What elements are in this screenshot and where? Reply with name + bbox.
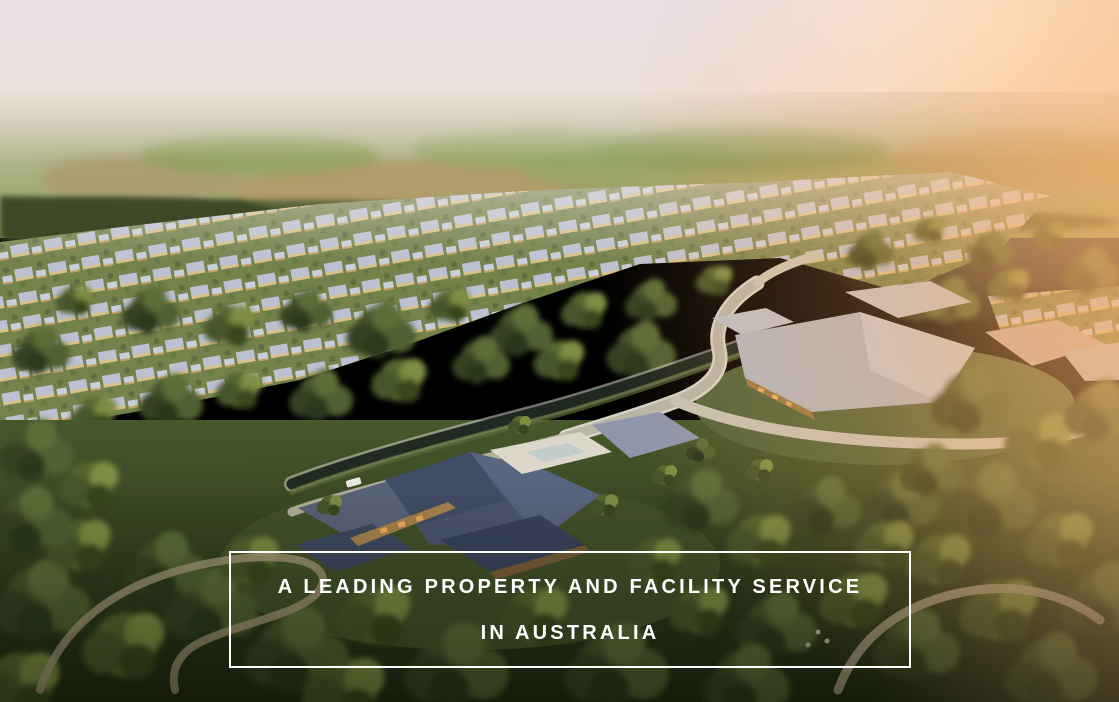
headline-box: A LEADING PROPERTY AND FACILITY SERVICE … — [229, 551, 911, 668]
headline-line-2: IN AUSTRALIA — [481, 623, 660, 643]
hero-banner: A LEADING PROPERTY AND FACILITY SERVICE … — [0, 0, 1119, 702]
headline-line-1: A LEADING PROPERTY AND FACILITY SERVICE — [278, 577, 863, 597]
